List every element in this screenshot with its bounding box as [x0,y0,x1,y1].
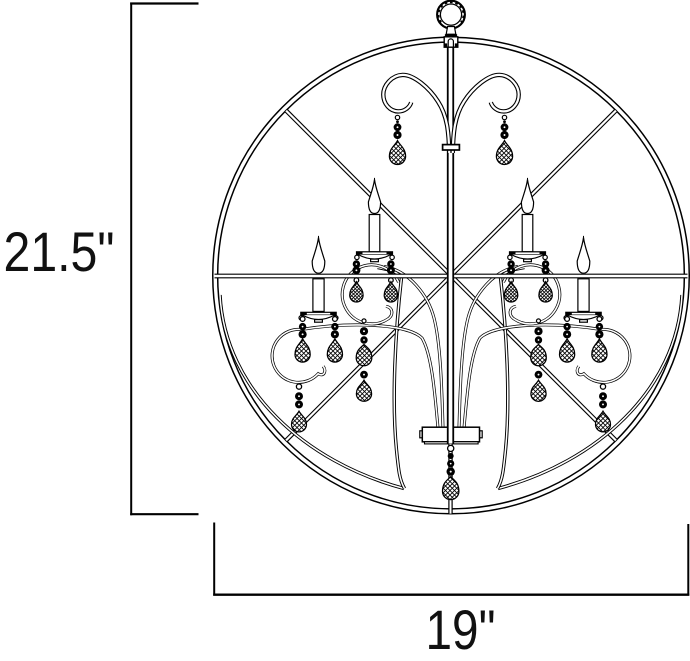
svg-text:19": 19" [426,599,496,661]
svg-text:21.5": 21.5" [4,221,115,283]
